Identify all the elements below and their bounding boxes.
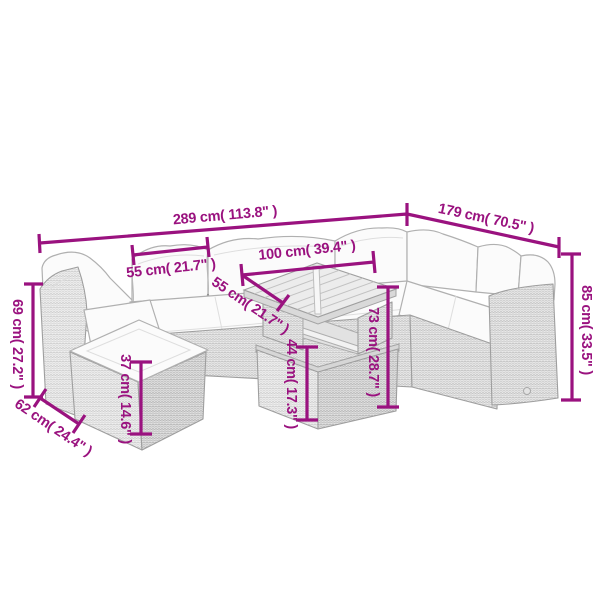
dim-left-backrest-height: 69 cm( 27.2" ): [9, 284, 43, 397]
dim-table-base-height-label: 44 cm( 17.3" ): [283, 339, 299, 429]
arm-drain-hole: [524, 388, 531, 395]
dim-backrest-height: 85 cm( 33.5" ): [561, 254, 594, 400]
dim-table-height-label: 73 cm( 28.7" ): [365, 307, 381, 397]
furniture-dimension-diagram: 289 cm( 113.8" ) 179 cm( 70.5" ) 55 cm( …: [0, 0, 600, 600]
dim-ottoman-height-label: 37 cm( 14.6" ): [117, 354, 133, 444]
right-arm-panel: [489, 284, 558, 405]
dim-backrest-height-line: [561, 254, 581, 400]
dim-backrest-height-label: 85 cm( 33.5" ): [578, 285, 594, 375]
product-dimension-image: 289 cm( 113.8" ) 179 cm( 70.5" ) 55 cm( …: [0, 0, 600, 600]
dim-left-backrest-height-label: 69 cm( 27.2" ): [9, 299, 25, 389]
back-cushion-4: [407, 230, 478, 292]
table-top-center-gap: [313, 266, 321, 314]
